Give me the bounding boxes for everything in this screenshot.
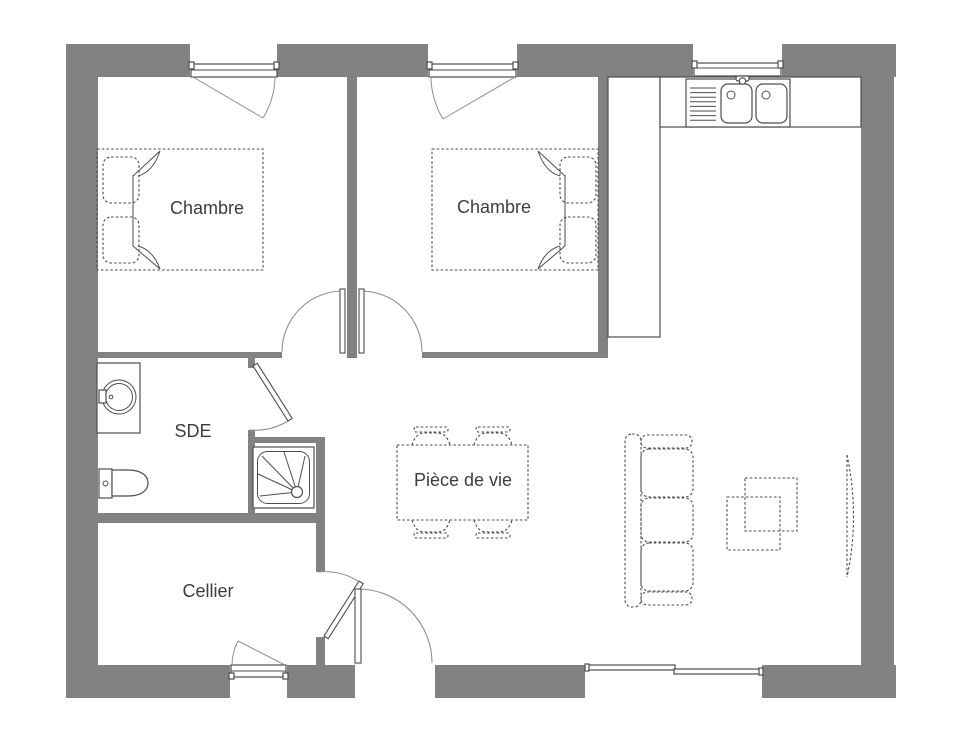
- window-icon-bedroom2: [427, 62, 518, 119]
- room-label-cellier: Cellier: [182, 581, 233, 601]
- room-label-sde: SDE: [174, 421, 211, 441]
- wall-shower-top: [248, 437, 325, 443]
- wall-openings: [190, 44, 782, 698]
- shower-icon: [253, 447, 314, 508]
- room-label-chambre-2: Chambre: [457, 197, 531, 217]
- floor-plan-canvas: Chambre Chambre SDE Cellier Pièce de vie: [0, 0, 960, 742]
- chair-icon: [474, 427, 512, 445]
- wall-right: [861, 44, 894, 698]
- floor-plan: Chambre Chambre SDE Cellier Pièce de vie: [0, 0, 960, 742]
- entrance-door-icon: [355, 589, 432, 663]
- coffee-table-icon: [727, 478, 797, 550]
- wall-hall-right: [422, 352, 608, 358]
- wall-bottom: [66, 665, 896, 698]
- wall-left: [66, 44, 98, 698]
- wall-bedroom2-kitchen: [598, 77, 608, 358]
- wall-cellier-stub: [316, 637, 325, 665]
- chair-icon: [412, 427, 450, 445]
- window-icon-cellier: [229, 641, 288, 679]
- window-icon-bedroom1: [189, 62, 279, 118]
- wall-shower-cellier-right: [316, 437, 325, 572]
- kitchen-counter-tall-icon: [608, 77, 660, 337]
- chair-icon: [412, 520, 450, 538]
- windows: [189, 61, 783, 679]
- room-label-piece-de-vie: Pièce de vie: [414, 470, 512, 490]
- wall-between-bedrooms: [347, 77, 357, 358]
- toilet-icon: [99, 469, 148, 498]
- washing-machine-icon: [97, 363, 140, 433]
- living-room-furniture: [397, 427, 854, 607]
- chair-icon: [474, 520, 512, 538]
- radiator-icon: [847, 455, 854, 577]
- room-label-chambre-1: Chambre: [170, 198, 244, 218]
- sofa-icon: [625, 434, 693, 607]
- opening-entrance-door: [355, 665, 435, 698]
- kitchen-sink-icon: [686, 76, 790, 127]
- kitchen-area: [608, 76, 861, 337]
- wall-sde-cellier: [98, 513, 325, 523]
- door-icon-bedroom1: [282, 289, 345, 353]
- door-icon-bedroom2: [359, 289, 422, 353]
- door-icon-sde: [250, 363, 292, 430]
